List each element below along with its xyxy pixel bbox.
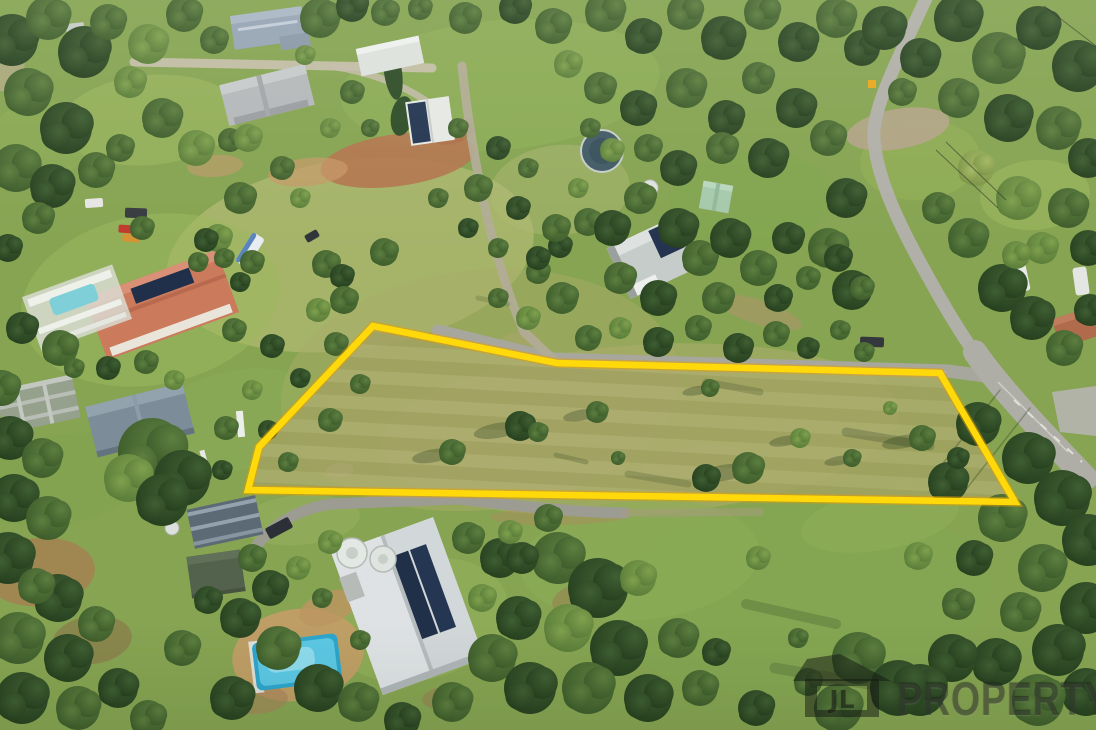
- scene-svg: [0, 0, 1096, 730]
- aerial-photo: JL PROPERTY: [0, 0, 1096, 730]
